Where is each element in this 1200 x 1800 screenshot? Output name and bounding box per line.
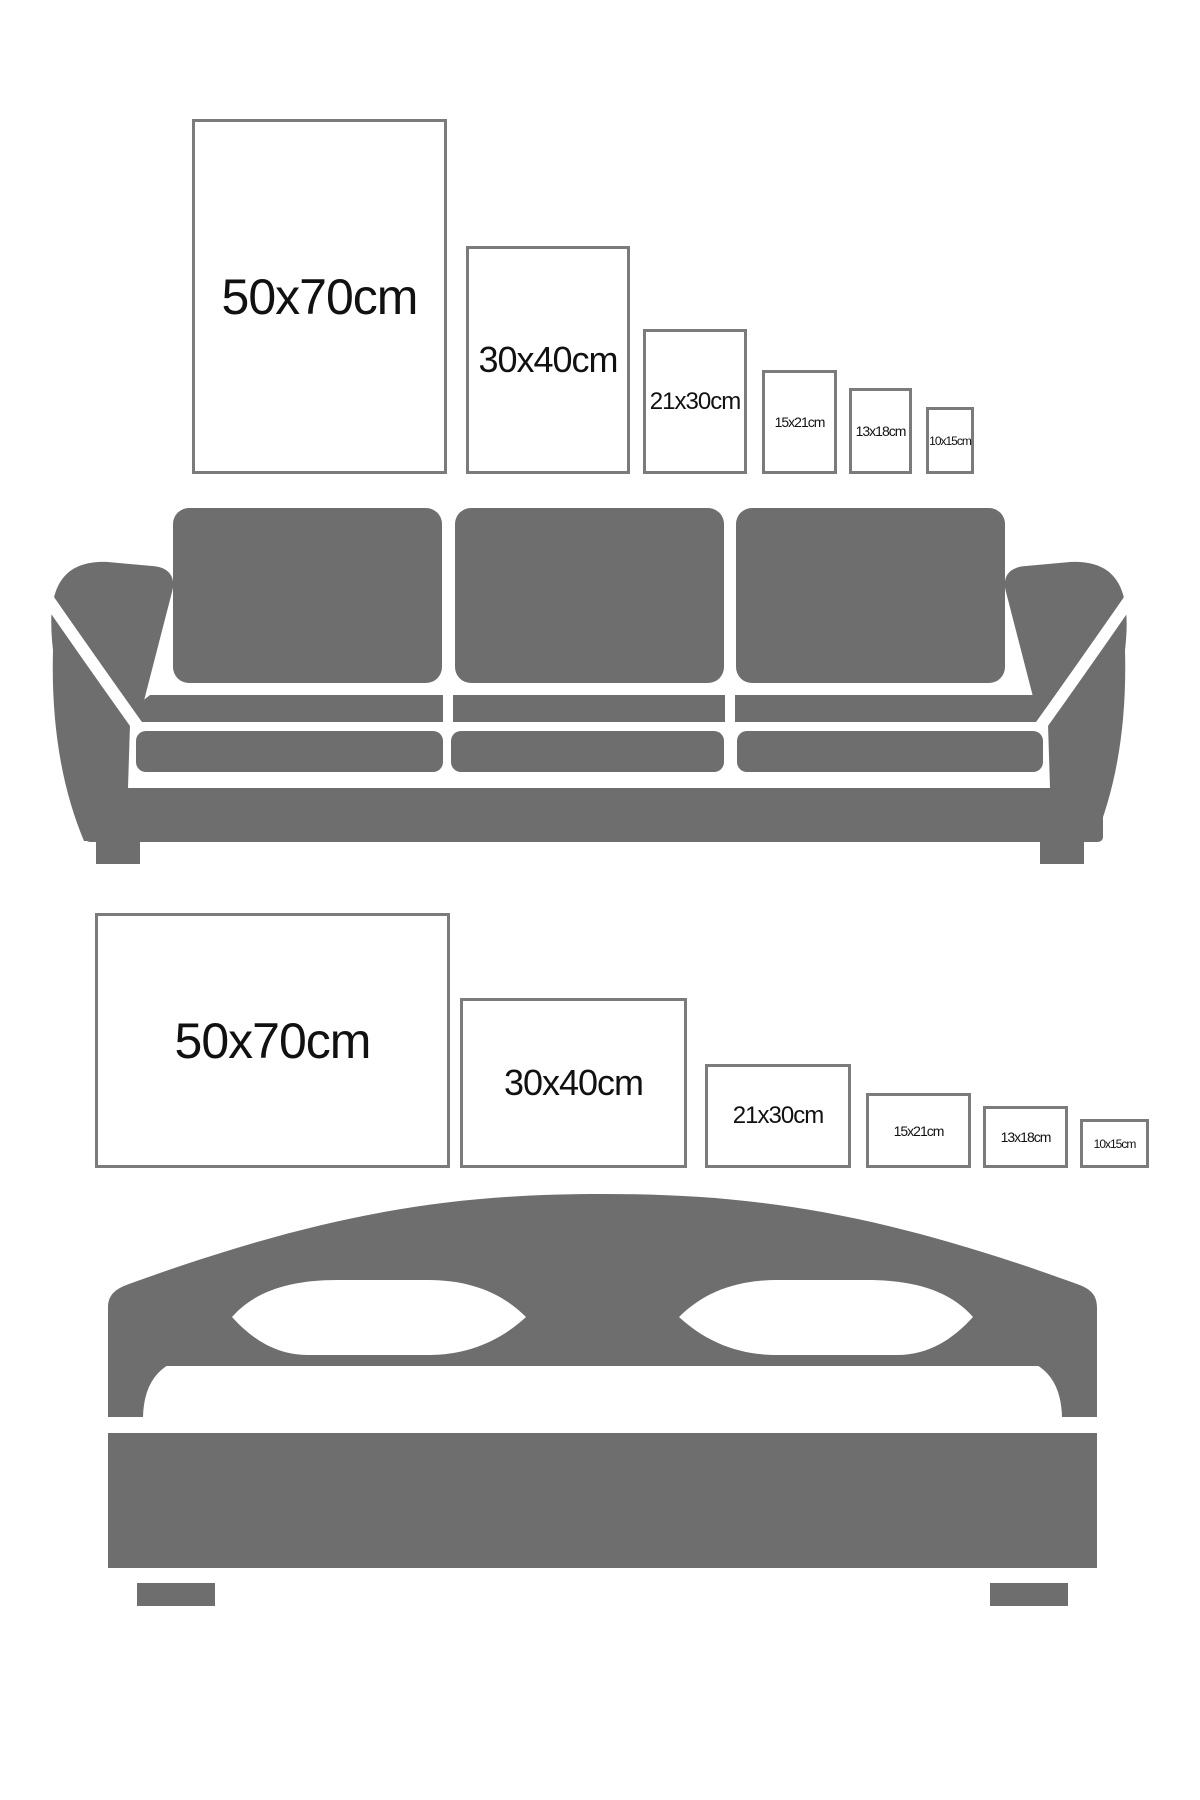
size-frame-portrait-10x15: 10x15cm bbox=[926, 407, 974, 474]
bed-pillow-right bbox=[679, 1280, 973, 1355]
bed-post-fillet-right bbox=[1035, 1364, 1064, 1417]
frame-size-label: 15x21cm bbox=[894, 1124, 944, 1138]
sofa-back-cushion bbox=[173, 508, 442, 683]
size-frame-portrait-15x21: 15x21cm bbox=[762, 370, 837, 474]
size-frame-portrait-13x18: 13x18cm bbox=[849, 388, 912, 474]
sofa-deck bbox=[116, 695, 1066, 722]
frame-size-label: 13x18cm bbox=[1001, 1130, 1051, 1144]
frame-size-label: 10x15cm bbox=[929, 435, 971, 447]
sofa-back-cushion bbox=[736, 508, 1005, 683]
size-frame-landscape-30x40: 30x40cm bbox=[460, 998, 687, 1168]
size-frame-landscape-13x18: 13x18cm bbox=[983, 1106, 1068, 1168]
bed-foot-right bbox=[990, 1583, 1068, 1606]
sofa-seat-cushion bbox=[451, 731, 724, 772]
frame-size-label: 21x30cm bbox=[650, 390, 740, 414]
bed-headboard bbox=[108, 1194, 1097, 1366]
size-frame-portrait-50x70: 50x70cm bbox=[192, 119, 447, 474]
size-frame-landscape-21x30: 21x30cm bbox=[705, 1064, 851, 1168]
bed-base bbox=[108, 1433, 1097, 1568]
sofa-foot-right bbox=[1040, 841, 1084, 864]
bed-post-right bbox=[1064, 1362, 1097, 1417]
sofa-deck-gap bbox=[725, 692, 735, 726]
sofa-foot-left bbox=[96, 841, 140, 864]
frame-size-label: 50x70cm bbox=[222, 272, 418, 322]
frame-size-label: 30x40cm bbox=[504, 1065, 643, 1101]
frame-size-label: 15x21cm bbox=[775, 415, 825, 429]
frame-size-label: 13x18cm bbox=[856, 424, 906, 438]
size-frame-portrait-21x30: 21x30cm bbox=[643, 329, 747, 474]
sofa-icon bbox=[0, 480, 1200, 880]
size-frame-landscape-15x21: 15x21cm bbox=[866, 1093, 971, 1168]
bed-post-left bbox=[108, 1362, 141, 1417]
frame-size-label: 21x30cm bbox=[733, 1104, 823, 1128]
frame-size-label: 50x70cm bbox=[175, 1016, 371, 1066]
size-frame-portrait-30x40: 30x40cm bbox=[466, 246, 630, 474]
frame-size-label: 30x40cm bbox=[478, 342, 617, 378]
sofa-deck-gap bbox=[443, 692, 453, 726]
sofa-base bbox=[85, 788, 1103, 842]
sofa-back-cushion bbox=[455, 508, 724, 683]
size-frame-landscape-50x70: 50x70cm bbox=[95, 913, 450, 1168]
bed-foot-left bbox=[137, 1583, 215, 1606]
bed-icon bbox=[0, 1180, 1200, 1620]
size-frame-landscape-10x15: 10x15cm bbox=[1080, 1119, 1149, 1168]
bed-post-fillet-left bbox=[141, 1364, 170, 1417]
sofa-seat-cushion bbox=[136, 731, 443, 772]
frame-size-label: 10x15cm bbox=[1094, 1138, 1136, 1150]
bed-pillow-left bbox=[232, 1280, 526, 1355]
sofa-seat-cushion bbox=[737, 731, 1043, 772]
